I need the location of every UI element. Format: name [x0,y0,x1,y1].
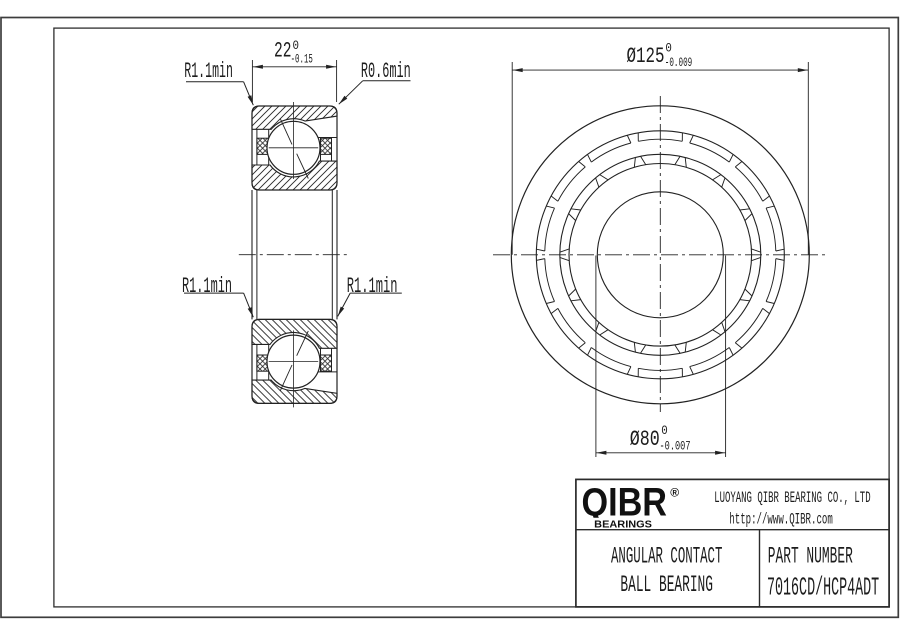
svg-text:-0.007: -0.007 [660,438,691,453]
svg-text:0: 0 [665,41,672,56]
svg-text:22: 22 [274,39,292,64]
svg-text:http://www.QIBR.com: http://www.QIBR.com [729,511,833,529]
svg-text:7016CD/HCP4ADT: 7016CD/HCP4ADT [767,573,879,603]
svg-text:R1.1min: R1.1min [184,59,233,84]
svg-text:Ø125: Ø125 [627,44,665,69]
svg-text:R1.1min: R1.1min [182,274,232,299]
svg-text:R1.1min: R1.1min [347,274,398,299]
svg-text:ANGULAR CONTACT: ANGULAR CONTACT [611,544,722,570]
svg-text:LUOYANG QIBR BEARING CO., LTD: LUOYANG QIBR BEARING CO., LTD [714,489,870,507]
svg-text:PART NUMBER: PART NUMBER [768,544,853,570]
svg-text:BEARINGS: BEARINGS [594,520,652,531]
svg-text:-0.009: -0.009 [665,55,692,70]
svg-text:0: 0 [661,423,668,438]
svg-text:Ø80: Ø80 [630,427,660,452]
svg-text:®: ® [670,486,679,500]
svg-text:BALL BEARING: BALL BEARING [620,572,713,598]
svg-text:R0.6min: R0.6min [361,59,411,84]
svg-text:-0.15: -0.15 [291,51,313,66]
